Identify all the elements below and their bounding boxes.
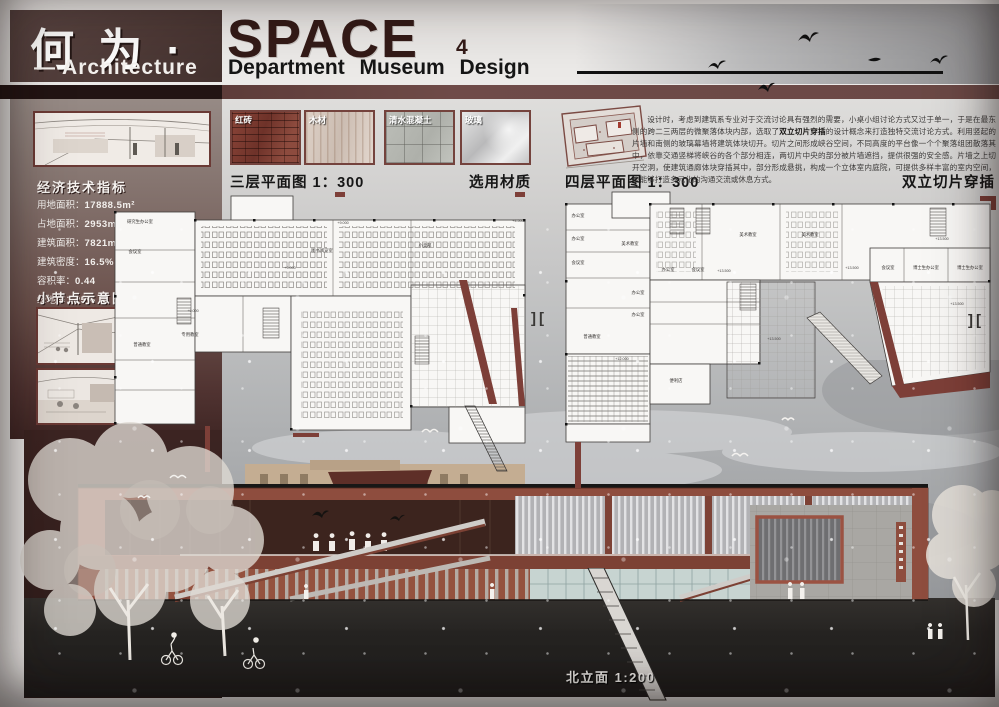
svg-text:美术教室: 美术教室 [621, 240, 639, 247]
svg-text:会议室: 会议室 [572, 259, 586, 266]
svg-text:会议室: 会议室 [692, 266, 706, 273]
figure-silhouettes [928, 623, 943, 639]
svg-text:+4.500: +4.500 [512, 219, 523, 223]
presentation-board: 何 为 · SPACE 4 — Architecture Department … [0, 0, 999, 707]
concrete-volume [750, 505, 912, 600]
svg-text:会议室: 会议室 [882, 264, 896, 271]
bird-icon [708, 32, 948, 92]
fourth-floor-plan: 办公室 办公室 会议室 美术教室 美术教室 美术教室 办公室 会议室 会议室 博… [552, 190, 999, 490]
plan3-label: 三层平面图 1：300 [230, 171, 364, 192]
material-label: 木材 [309, 114, 326, 126]
cyclist-silhouette [162, 633, 265, 669]
elevation-label: 北立面 1:200 [566, 667, 655, 686]
section-cut-marks: ][ [968, 312, 984, 329]
svg-text:小卖部: 小卖部 [419, 242, 433, 249]
tree-silhouettes-left [10, 420, 280, 707]
header-strip-left [0, 85, 222, 99]
svg-text:普通教室: 普通教室 [583, 333, 601, 340]
svg-text:+13.500: +13.500 [767, 337, 780, 341]
svg-text:+13.500: +13.500 [717, 269, 730, 273]
svg-text:+13.500: +13.500 [950, 302, 963, 306]
svg-text:+9.000: +9.000 [337, 221, 348, 225]
description-bold-term: 双立切片穿插 [779, 127, 826, 136]
svg-text:办公室: 办公室 [572, 212, 586, 219]
material-label: 玻璃 [465, 114, 482, 126]
svg-text:便利店: 便利店 [670, 377, 684, 384]
svg-text:+13.500: +13.500 [845, 266, 858, 270]
subtitle-architecture: — Architecture [34, 56, 198, 80]
svg-text:美术教室: 美术教室 [739, 231, 757, 238]
svg-text:办公室: 办公室 [632, 311, 646, 318]
svg-text:办公室: 办公室 [572, 235, 586, 242]
svg-text:博士生办公室: 博士生办公室 [913, 264, 939, 271]
ramp-element [580, 568, 672, 707]
header-birds [620, 8, 990, 103]
rooftop-object [328, 470, 432, 486]
node-sketch-2 [36, 368, 120, 425]
material-swatch-brick: 红砖 [230, 110, 301, 165]
svg-text:+9.000: +9.000 [187, 309, 198, 313]
svg-text:会议室: 会议室 [129, 248, 143, 255]
section-cut-marks: ][ [531, 310, 547, 327]
material-swatch-glass: 玻璃 [460, 110, 531, 165]
svg-text:办公室: 办公室 [662, 266, 676, 273]
material-swatch-concrete: 清水混凝土 [384, 110, 455, 165]
node-sketch-1 [36, 307, 120, 365]
design-description: 设计时，考虑到建筑系专业对于交流讨论具有强烈的需要，小桌小组讨论方式又过于单一，… [632, 114, 996, 178]
svg-text:普通教室: 普通教室 [133, 341, 151, 348]
tree-silhouettes-right [912, 455, 999, 670]
svg-text:+12.000: +12.000 [615, 357, 628, 361]
svg-text:专用教室: 专用教室 [181, 331, 199, 338]
svg-text:办公室: 办公室 [632, 289, 646, 296]
svg-text:图书阅览室: 图书阅览室 [311, 247, 333, 254]
material-label: 红砖 [235, 114, 252, 126]
interior-sketch-1 [33, 111, 211, 167]
material-swatch-wood: 木材 [304, 110, 375, 165]
material-label: 清水混凝土 [389, 114, 432, 126]
svg-text:美术教室: 美术教室 [801, 231, 819, 238]
svg-text:+9.000: +9.000 [284, 266, 295, 270]
svg-text:+13.500: +13.500 [935, 237, 948, 241]
subtitle-department: Department Museum Design [228, 56, 530, 80]
svg-text:博士生办公室: 博士生办公室 [957, 264, 983, 271]
svg-text:研究生办公室: 研究生办公室 [127, 218, 153, 225]
materials-section-label: 选用材质 [380, 171, 531, 192]
